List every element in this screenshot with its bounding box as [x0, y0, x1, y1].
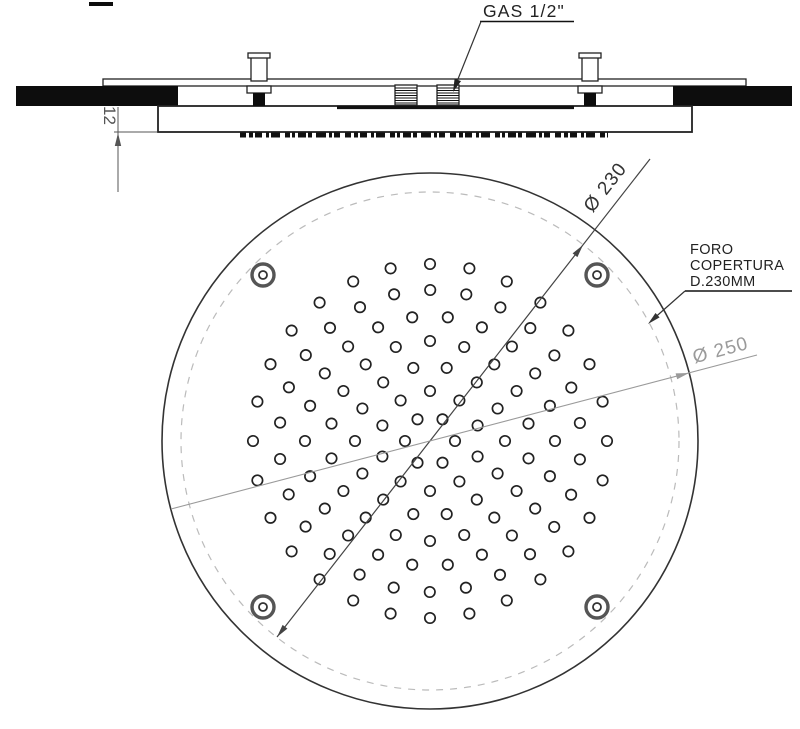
nozzle-hole — [525, 323, 535, 333]
cover-hole-note: FORO COPERTURA D.230MM — [648, 242, 792, 324]
nozzle-hole — [338, 386, 348, 396]
nozzle-hole — [511, 486, 521, 496]
dia230-label: Ø 230 — [580, 159, 631, 217]
nozzle-hole — [314, 297, 324, 307]
nozzle-hole — [507, 530, 517, 540]
nozzle-hole — [325, 323, 335, 333]
nozzle-hole — [252, 475, 262, 485]
nozzle-hole — [265, 359, 275, 369]
nozzle-hole — [391, 342, 401, 352]
nozzle-hole — [389, 582, 399, 592]
nozzle-hole — [248, 436, 258, 446]
nozzle-hole — [275, 417, 285, 427]
nozzle-hole — [286, 325, 296, 335]
stud-cap — [248, 53, 270, 58]
nozzle-hole — [549, 522, 559, 532]
nozzle-hole — [326, 453, 336, 463]
nozzle-hole — [357, 468, 367, 478]
nozzle-hole — [495, 302, 505, 312]
screw-center-hole — [593, 271, 601, 279]
screw-hole — [586, 264, 608, 286]
nozzle-hole — [373, 322, 383, 332]
sheet-border-mark — [89, 2, 113, 6]
nozzle-hole — [584, 359, 594, 369]
nozzle-hole — [472, 451, 482, 461]
screw-center-hole — [259, 271, 267, 279]
stud-stem — [253, 93, 265, 106]
thickness-dim-text: 12 — [100, 106, 119, 125]
nozzle-hole — [442, 363, 452, 373]
nozzle-hole — [265, 513, 275, 523]
thickness-dimension: 12 — [100, 106, 157, 192]
nozzle-hole — [412, 414, 422, 424]
nozzle-hole — [464, 608, 474, 618]
gas-leader-line — [456, 22, 481, 85]
nozzle-hole — [389, 289, 399, 299]
nozzle-hole — [325, 549, 335, 559]
fixing-stud-right — [578, 53, 602, 106]
nozzle-hole — [407, 560, 417, 570]
nozzle-hole — [489, 359, 499, 369]
nozzle-hole — [425, 336, 435, 346]
note-line-3: D.230MM — [690, 274, 756, 290]
top-plan-view: Ø 230 Ø 250 FORO COPERTURA D.230MM — [162, 159, 792, 709]
nozzle-hole — [507, 341, 517, 351]
nozzle-hole — [530, 503, 540, 513]
nozzle-hole — [348, 276, 358, 286]
nozzle-hole — [425, 386, 435, 396]
nozzle-hole — [252, 396, 262, 406]
stud-body — [582, 57, 598, 81]
stud-stem — [584, 93, 596, 106]
nozzle-hole — [275, 454, 285, 464]
nozzle-hole — [437, 458, 447, 468]
nozzle-hole — [300, 521, 310, 531]
nozzle-hole — [602, 436, 612, 446]
nozzle-hole — [378, 377, 388, 387]
nozzle-hole — [355, 302, 365, 312]
dia250-label: Ø 250 — [690, 333, 750, 368]
technical-drawing-canvas: 12 GAS 1/2" Ø 230 Ø 250 — [0, 0, 800, 729]
stud-cap — [579, 53, 601, 58]
ceiling-section-right — [673, 86, 792, 106]
nozzle-hole — [300, 436, 310, 446]
nozzle-hole — [361, 359, 371, 369]
nozzle-hole — [284, 382, 294, 392]
nozzle-hole — [338, 486, 348, 496]
nozzle-hole — [361, 512, 371, 522]
nozzle-hole — [385, 263, 395, 273]
side-section-view: 12 GAS 1/2" — [16, 1, 792, 192]
nozzle-hole — [320, 368, 330, 378]
screw-hole — [252, 596, 274, 618]
nozzle-hole — [545, 471, 555, 481]
nozzle-hole — [535, 574, 545, 584]
nozzle-hole — [400, 436, 410, 446]
nozzle-hole — [348, 595, 358, 605]
nozzle-hole — [477, 322, 487, 332]
stud-body — [251, 57, 267, 81]
nozzle-hole — [549, 350, 559, 360]
nozzle-hole — [391, 530, 401, 540]
nozzle-hole — [408, 509, 418, 519]
nozzle-hole — [454, 476, 464, 486]
nozzle-hole — [511, 386, 521, 396]
nozzle-hole — [523, 418, 533, 428]
nozzle-hole — [575, 418, 585, 428]
nozzle-hole — [326, 418, 336, 428]
note-line-2: COPERTURA — [690, 258, 784, 274]
mounting-plate — [103, 79, 746, 86]
nozzle-hole — [461, 583, 471, 593]
nozzle-hole — [492, 403, 502, 413]
nozzle-hole — [443, 560, 453, 570]
nozzle-hole — [495, 570, 505, 580]
nozzle-hole — [461, 289, 471, 299]
ceiling-section-left — [16, 86, 178, 106]
screw-hole — [586, 596, 608, 618]
nozzle-hole — [425, 536, 435, 546]
nozzle-hole — [575, 454, 585, 464]
nozzle-hole — [301, 350, 311, 360]
nozzle-hole — [343, 341, 353, 351]
nozzle-hole — [550, 436, 560, 446]
note-line-1: FORO — [690, 242, 734, 258]
fixing-stud-left — [247, 53, 271, 106]
nozzle-hole — [407, 312, 417, 322]
nozzle-hole — [442, 509, 452, 519]
nozzle-hole — [286, 546, 296, 556]
nozzle-hole — [425, 259, 435, 269]
nozzle-hole — [584, 513, 594, 523]
nozzle-hole — [343, 530, 353, 540]
gas-label-text: GAS 1/2" — [483, 1, 565, 21]
nozzle-hole — [284, 489, 294, 499]
nozzle-hole — [395, 395, 405, 405]
nozzle-hole — [412, 458, 422, 468]
thread-hatching — [395, 88, 459, 103]
nozzle-hole — [597, 396, 607, 406]
nozzle-hole — [530, 368, 540, 378]
nozzle-hole — [500, 436, 510, 446]
nozzle-hole — [489, 512, 499, 522]
dimension-arrow-up — [115, 133, 121, 146]
nozzle-hole — [502, 595, 512, 605]
nozzle-hole — [525, 549, 535, 559]
nozzle-hole — [597, 475, 607, 485]
nozzle-hole — [425, 486, 435, 496]
stud-flange — [578, 86, 602, 93]
screw-hole — [252, 264, 274, 286]
nozzle-hole — [354, 569, 364, 579]
screw-center-hole — [259, 603, 267, 611]
nozzle-hole — [357, 403, 367, 413]
nozzle-hole — [425, 587, 435, 597]
nozzle-hole — [472, 494, 482, 504]
nozzle-hole — [523, 453, 533, 463]
nozzle-hole — [408, 363, 418, 373]
nozzle-hole — [425, 613, 435, 623]
nozzle-hole — [350, 436, 360, 446]
nozzle-hole — [459, 530, 469, 540]
nozzle-hole — [385, 608, 395, 618]
nozzle-hole — [477, 550, 487, 560]
nozzle-hole — [492, 468, 502, 478]
nozzle-hole — [377, 420, 387, 430]
nozzle-hole — [566, 490, 576, 500]
nozzle-hole — [563, 546, 573, 556]
screw-center-hole — [593, 603, 601, 611]
shower-body-section — [158, 106, 692, 132]
threaded-inlet-fitting — [395, 85, 459, 105]
nozzle-hole — [305, 401, 315, 411]
nozzle-hole — [443, 312, 453, 322]
stud-flange — [247, 86, 271, 93]
nozzle-hole — [320, 503, 330, 513]
nozzle-hole — [563, 325, 573, 335]
nozzle-hole — [459, 342, 469, 352]
nozzle-hole — [425, 285, 435, 295]
nozzle-hole — [450, 436, 460, 446]
gas-connection-callout: GAS 1/2" — [453, 1, 574, 92]
nozzle-hole — [566, 382, 576, 392]
drawing-sheet: 12 GAS 1/2" Ø 230 Ø 250 — [0, 0, 800, 729]
nozzle-hole — [464, 263, 474, 273]
nozzle-hole — [502, 276, 512, 286]
nozzle-hole — [373, 550, 383, 560]
